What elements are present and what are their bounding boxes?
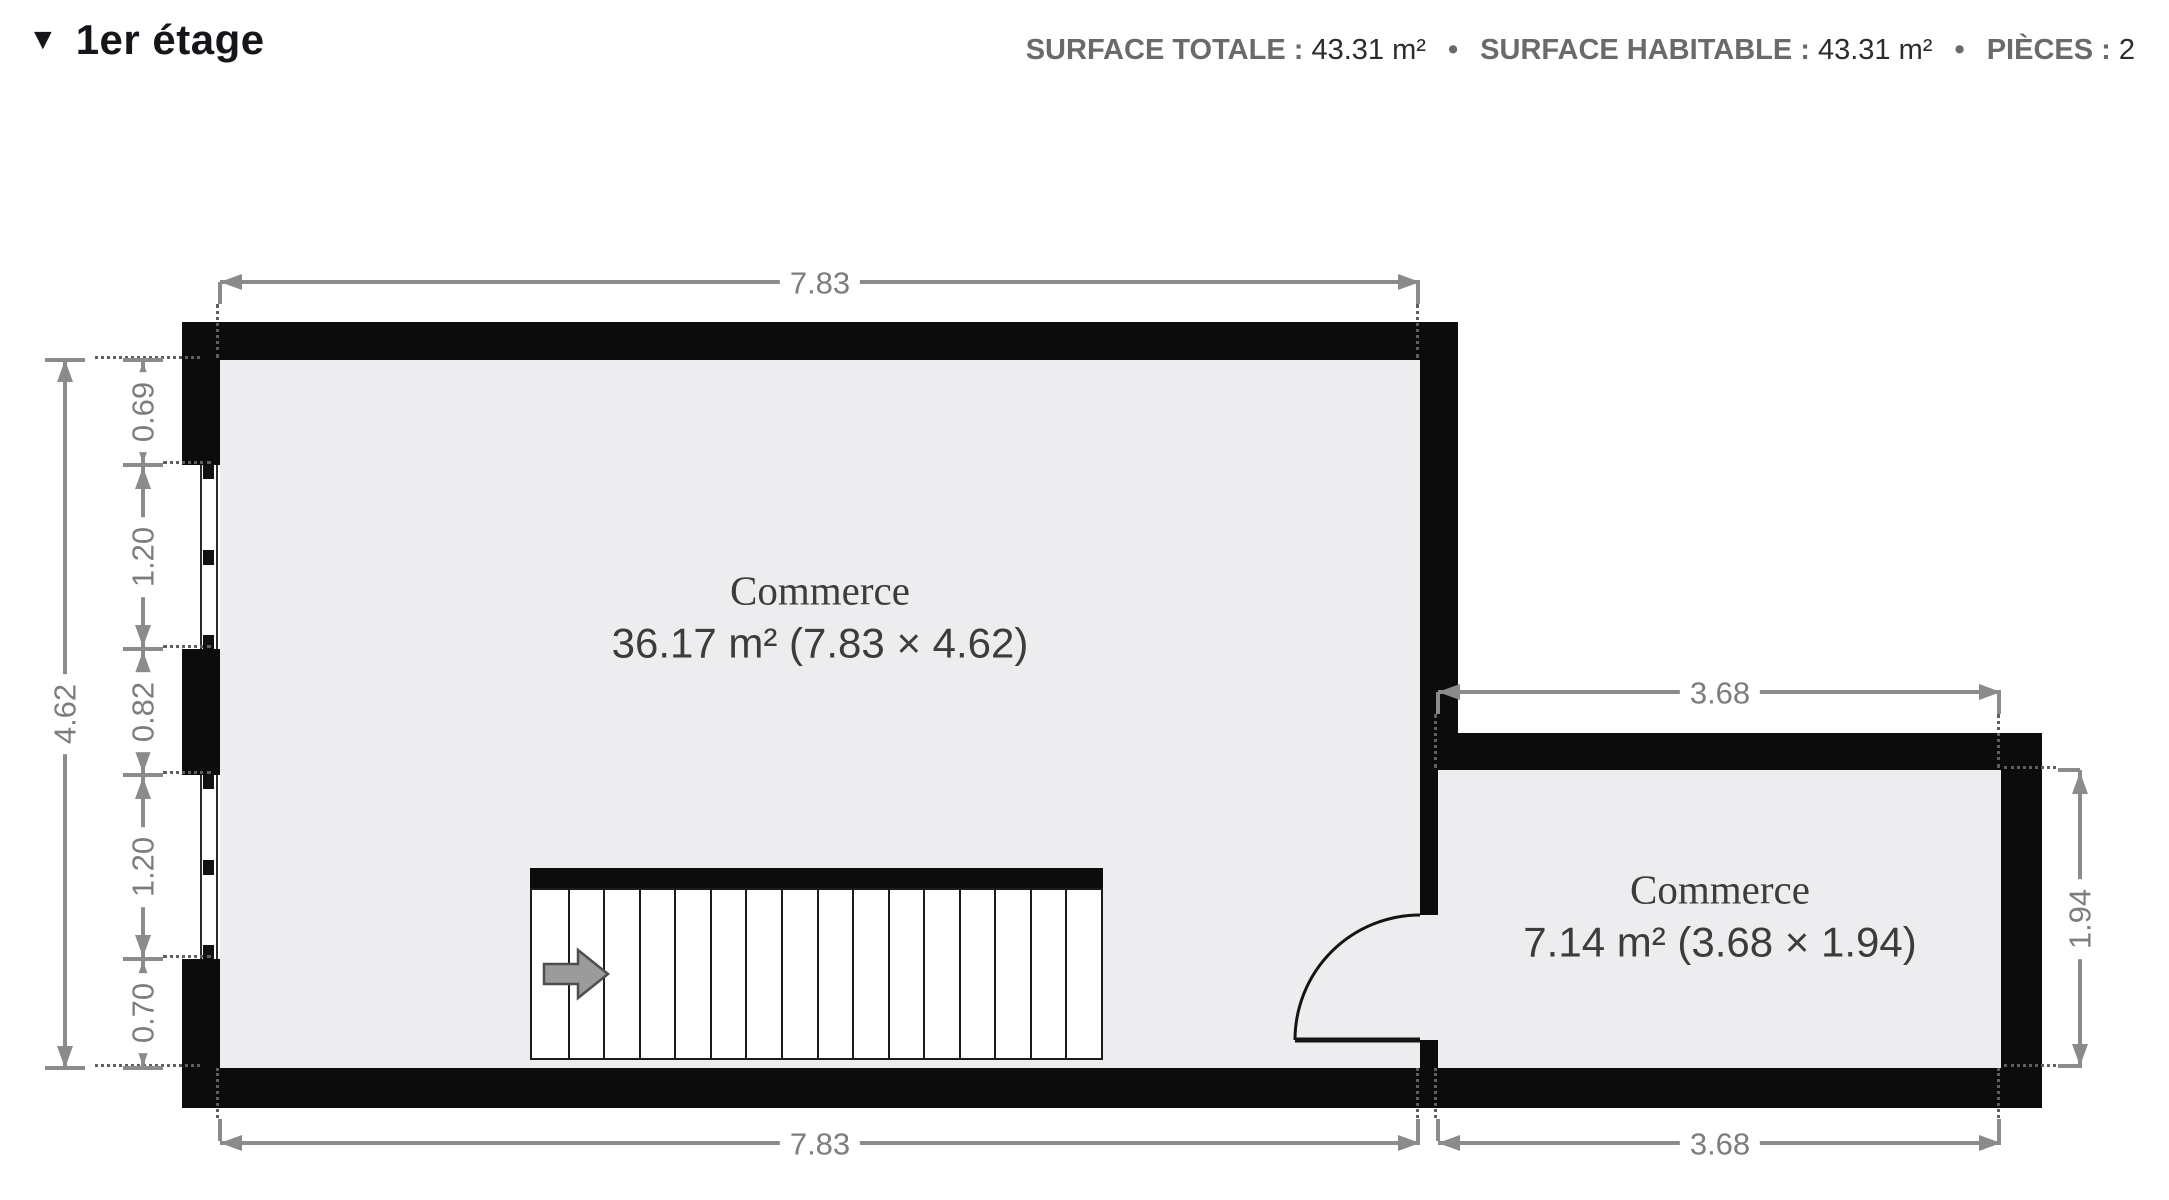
collapse-triangle-icon[interactable]: ▼ [28, 25, 58, 55]
dim-tick [123, 773, 163, 777]
room-name: Commerce [612, 568, 1029, 613]
dim-extension [1434, 1068, 1437, 1118]
room-label-small: Commerce 7.14 m² (3.68 × 1.94) [1523, 867, 1916, 966]
wall-small-room-right [2001, 733, 2042, 1108]
dim-segment-label: 1.20 [124, 517, 163, 597]
dim-arrow [220, 1135, 242, 1151]
dim-segment-label: 0.82 [124, 672, 163, 752]
dim-tick [123, 647, 163, 651]
wall-partition-upper [1420, 770, 1438, 915]
wall-small-room-top [1438, 733, 2042, 770]
dim-end-bar [218, 282, 222, 304]
dim-tick [123, 463, 163, 467]
dim-segment-label: 1.20 [124, 827, 163, 907]
dim-end-bar [2058, 1064, 2080, 1068]
stair-treads [530, 888, 1103, 1060]
floor-header: ▼ 1er étage [28, 16, 265, 64]
stats-separator: • [1954, 34, 1964, 66]
dim-extension [163, 461, 211, 464]
dim-end-bar [1436, 1119, 1440, 1141]
dim-extension [2004, 1064, 2056, 1067]
dim-top-width-label: 7.83 [780, 264, 860, 303]
window-mullion [203, 860, 214, 875]
dim-extension [1416, 304, 1419, 358]
dim-arrow [135, 651, 151, 673]
stair-direction-arrow-icon [542, 946, 612, 1002]
dim-arrow [135, 751, 151, 773]
dim-arrow [220, 274, 242, 290]
surface-habitable-value: 43.31 m² [1818, 34, 1932, 66]
dim-arrow [135, 467, 151, 489]
dim-bottom-width-label: 7.83 [780, 1125, 860, 1164]
dim-segment-label: 0.70 [124, 973, 163, 1053]
room-name: Commerce [1523, 867, 1916, 912]
window-glazing-line [216, 775, 218, 959]
dim-tick [123, 957, 163, 961]
dim-extension [2004, 766, 2056, 769]
wall-top [182, 322, 1458, 360]
pieces-value: 2 [2119, 34, 2135, 66]
dim-arrow [57, 1046, 73, 1068]
stats-separator: • [1448, 34, 1458, 66]
dim-arrow [1438, 684, 1460, 700]
dim-extension [163, 771, 211, 774]
dim-extension [1434, 714, 1437, 768]
staircase [530, 868, 1103, 1060]
dim-extension [1997, 1068, 2000, 1118]
room-area: 7.14 m² (3.68 × 1.94) [1523, 918, 1916, 966]
window-glazing-line [200, 775, 202, 959]
room-label-main: Commerce 36.17 m² (7.83 × 4.62) [612, 568, 1029, 667]
surface-stats: SURFACE TOTALE : 43.31 m² • SURFACE HABI… [1026, 34, 2135, 67]
room-area: 36.17 m² (7.83 × 4.62) [612, 619, 1029, 667]
pieces-label: PIÈCES : [1987, 34, 2111, 66]
dim-end-bar [45, 1066, 85, 1070]
window-glazing-line [216, 465, 218, 649]
dim-extension [216, 304, 219, 358]
dim-extension [1997, 714, 2000, 768]
dim-extension [163, 645, 211, 648]
dim-arrow [1438, 1135, 1460, 1151]
window-mullion [203, 465, 214, 479]
surface-total-value: 43.31 m² [1311, 34, 1425, 66]
dim-arrow [2072, 772, 2088, 794]
stair-top-band [530, 868, 1103, 888]
window-mullion [203, 775, 214, 789]
dim-end-bar [1997, 692, 2001, 714]
dim-arrow [57, 360, 73, 382]
floor-plan-canvas: ▼ 1er étage SURFACE TOTALE : 43.31 m² • … [0, 0, 2169, 1200]
wall-bottom [182, 1068, 2042, 1108]
dim-segment-label: 0.69 [124, 372, 163, 452]
dim-arrow [2072, 1044, 2088, 1066]
surface-total-label: SURFACE TOTALE : [1026, 34, 1304, 66]
dim-end-bar [1416, 1119, 1420, 1141]
dim-small-top-width-label: 3.68 [1680, 674, 1760, 713]
dim-end-bar [1416, 282, 1420, 304]
dim-end-bar [218, 1119, 222, 1141]
dim-end-bar [45, 358, 85, 362]
dim-left-height-label: 4.62 [46, 674, 85, 754]
dim-tick [123, 1066, 163, 1070]
wall-left-middle [182, 649, 220, 775]
dim-small-bottom-width-label: 3.68 [1680, 1125, 1760, 1164]
dim-end-bar [1436, 692, 1440, 714]
dim-arrow [135, 777, 151, 799]
dim-extension [163, 955, 211, 958]
dim-arrow [135, 625, 151, 647]
wall-left-upper [182, 322, 220, 465]
dim-small-right-height-label: 1.94 [2061, 879, 2100, 959]
window-mullion [203, 550, 214, 565]
dim-extension [216, 1068, 219, 1118]
window-glazing-line [200, 465, 202, 649]
dim-arrow [135, 935, 151, 957]
door-swing-icon [1280, 900, 1440, 1050]
dim-end-bar [2058, 768, 2080, 772]
dim-extension [1416, 1068, 1419, 1118]
dim-end-bar [1997, 1119, 2001, 1141]
floor-title: 1er étage [76, 16, 265, 64]
surface-habitable-label: SURFACE HABITABLE : [1480, 34, 1810, 66]
dim-tick [123, 358, 163, 362]
